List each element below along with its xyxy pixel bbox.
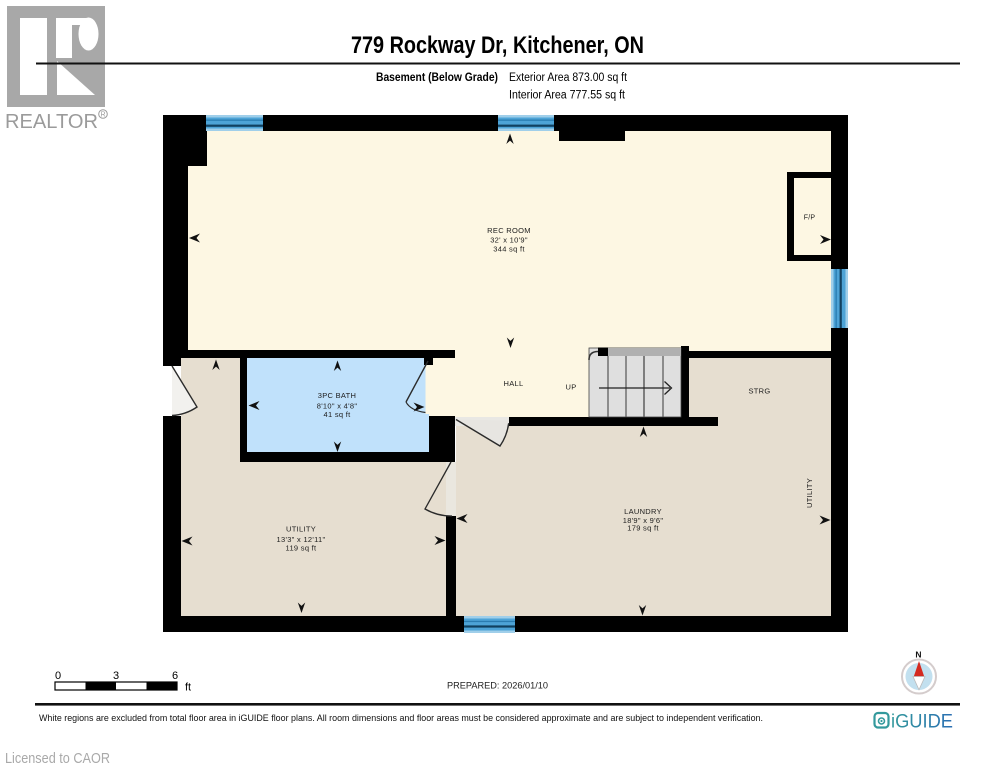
- svg-text:Interior Area 777.55 sq ft: Interior Area 777.55 sq ft: [509, 90, 626, 102]
- svg-text:119 sq ft: 119 sq ft: [286, 544, 318, 553]
- svg-text:Licensed to CAOR: Licensed to CAOR: [5, 750, 110, 767]
- svg-text:White regions are excluded fro: White regions are excluded from total fl…: [39, 713, 763, 724]
- svg-text:HALL: HALL: [504, 379, 524, 388]
- svg-text:0: 0: [55, 670, 61, 682]
- svg-text:Basement (Below Grade): Basement (Below Grade): [376, 72, 498, 84]
- svg-text:Exterior Area 873.00 sq ft: Exterior Area 873.00 sq ft: [509, 72, 628, 84]
- svg-text:3PC BATH: 3PC BATH: [318, 391, 357, 400]
- svg-text:32' x 10'9": 32' x 10'9": [490, 236, 528, 245]
- svg-text:6: 6: [172, 670, 178, 682]
- svg-text:REC ROOM: REC ROOM: [487, 226, 531, 235]
- svg-text:UTILITY: UTILITY: [286, 525, 316, 534]
- svg-text:179 sq ft: 179 sq ft: [627, 524, 659, 533]
- svg-text:F/P: F/P: [804, 215, 816, 222]
- svg-text:REALTOR: REALTOR: [5, 111, 98, 133]
- svg-text:PREPARED: 2026/01/10: PREPARED: 2026/01/10: [447, 681, 548, 692]
- svg-text:iGUIDE: iGUIDE: [891, 711, 953, 733]
- svg-text:UTILITY: UTILITY: [805, 478, 814, 508]
- svg-text:STRG: STRG: [748, 387, 770, 396]
- svg-text:344 sq ft: 344 sq ft: [493, 245, 525, 254]
- svg-text:41 sq ft: 41 sq ft: [324, 410, 352, 419]
- svg-text:R: R: [100, 112, 105, 119]
- svg-text:779 Rockway Dr, Kitchener, ON: 779 Rockway Dr, Kitchener, ON: [351, 32, 644, 59]
- svg-text:ft: ft: [185, 682, 191, 694]
- svg-text:3: 3: [113, 670, 119, 682]
- svg-text:UP: UP: [565, 383, 576, 392]
- svg-text:LAUNDRY: LAUNDRY: [624, 507, 662, 516]
- svg-text:N: N: [915, 650, 921, 660]
